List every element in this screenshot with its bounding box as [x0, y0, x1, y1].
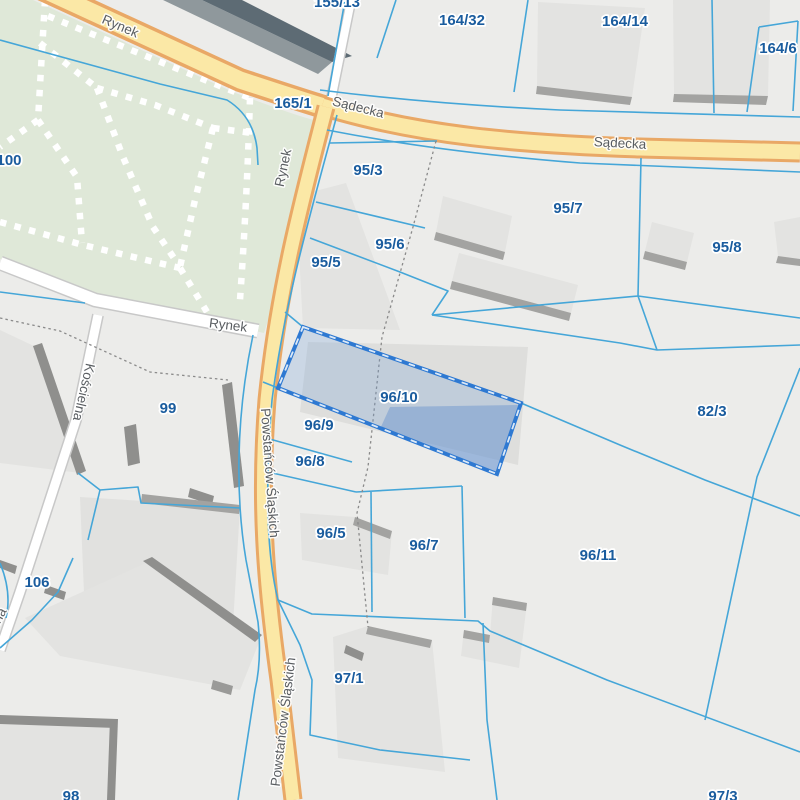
map-viewport[interactable]: 155/13164/32164/14164/6165/110095/395/79…: [0, 0, 800, 800]
parcel-label-100[interactable]: 100: [0, 152, 22, 169]
parcel-label-95-3[interactable]: 95/3: [353, 162, 382, 179]
parcel-label-95-8[interactable]: 95/8: [712, 239, 741, 256]
cadastral-map[interactable]: 155/13164/32164/14164/6165/110095/395/79…: [0, 0, 800, 800]
parcel-label-164-32[interactable]: 164/32: [439, 12, 485, 29]
parcel-label-96-8[interactable]: 96/8: [295, 453, 324, 470]
parcel-label-96-5[interactable]: 96/5: [316, 525, 345, 542]
parcel-label-96-9[interactable]: 96/9: [304, 417, 333, 434]
parcel-label-165-1[interactable]: 165/1: [274, 95, 312, 112]
parcel-label-95-5[interactable]: 95/5: [311, 254, 340, 271]
parcel-label-96-10[interactable]: 96/10: [380, 389, 418, 406]
parcel-label-95-6[interactable]: 95/6: [375, 236, 404, 253]
parcel-label-82-3[interactable]: 82/3: [697, 403, 726, 420]
street-label-sądecka: Sądecka: [593, 134, 647, 152]
parcel-label-155-13[interactable]: 155/13: [314, 0, 360, 11]
parcel-label-96-7[interactable]: 96/7: [409, 537, 438, 554]
parcel-label-99[interactable]: 99: [160, 400, 177, 417]
parcel-label-95-7[interactable]: 95/7: [553, 200, 582, 217]
parcel-label-97-1[interactable]: 97/1: [334, 670, 363, 687]
parcel-label-97-3[interactable]: 97/3: [708, 788, 737, 800]
parcel-label-106[interactable]: 106: [24, 574, 49, 591]
parcel-label-164-6[interactable]: 164/6: [759, 40, 797, 57]
parcel-label-98[interactable]: 98: [63, 788, 80, 800]
parcel-label-96-11[interactable]: 96/11: [580, 547, 617, 564]
parcel-label-164-14[interactable]: 164/14: [602, 13, 649, 30]
